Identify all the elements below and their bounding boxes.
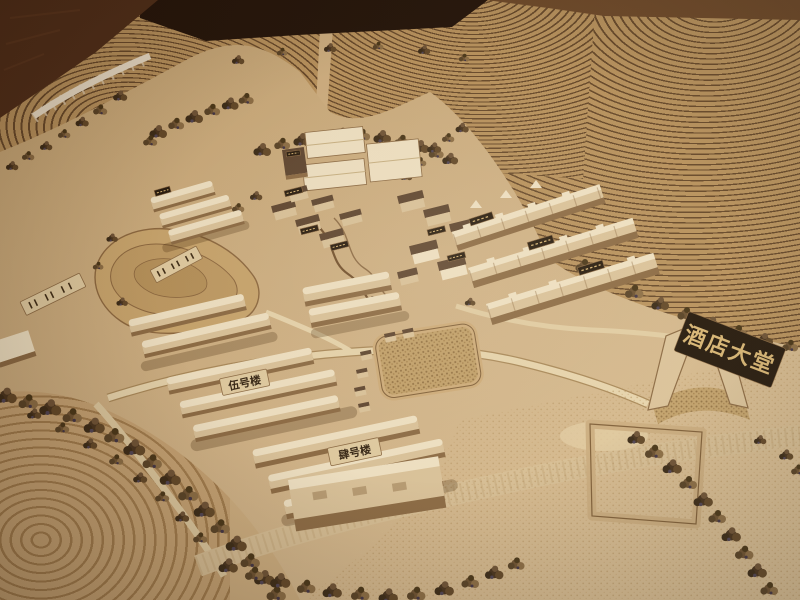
table-shadow (140, 0, 488, 41)
model-photo: 伍号楼 肆号楼 (0, 0, 800, 600)
